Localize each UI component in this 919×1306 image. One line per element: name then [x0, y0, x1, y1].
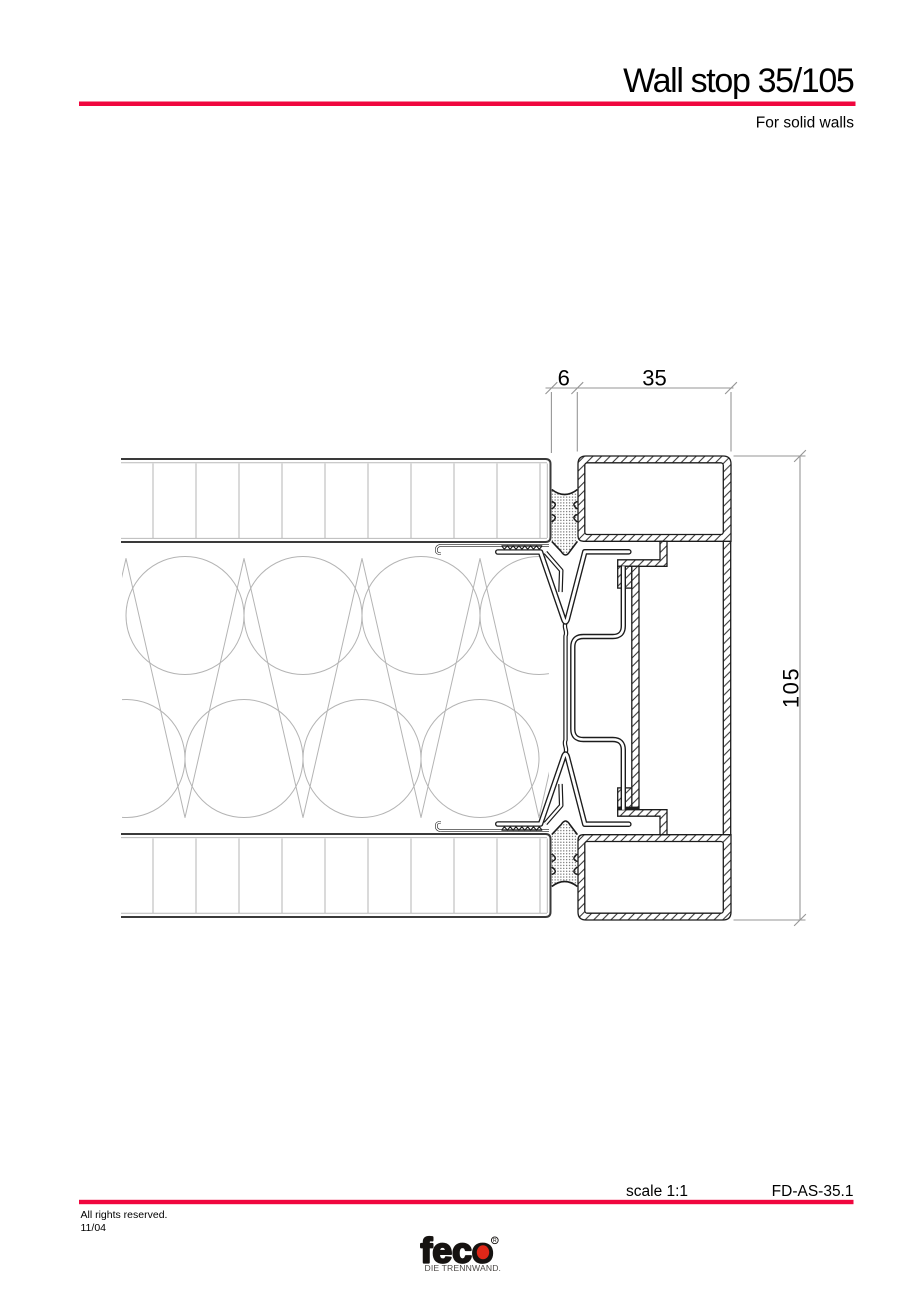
svg-text:105: 105 — [779, 667, 804, 708]
svg-text:All rights reserved.: All rights reserved. — [81, 1209, 168, 1221]
svg-text:For solid walls: For solid walls — [756, 115, 854, 132]
svg-text:DIE TRENNWAND.: DIE TRENNWAND. — [425, 1263, 502, 1273]
svg-text:35: 35 — [642, 366, 666, 391]
svg-text:FD-AS-35.1: FD-AS-35.1 — [772, 1183, 854, 1200]
svg-text:6: 6 — [558, 366, 570, 391]
svg-text:scale 1:1: scale 1:1 — [626, 1183, 688, 1200]
svg-text:R: R — [493, 1238, 497, 1244]
svg-text:11/04: 11/04 — [81, 1222, 107, 1234]
svg-text:Wall stop 35/105: Wall stop 35/105 — [623, 62, 854, 100]
